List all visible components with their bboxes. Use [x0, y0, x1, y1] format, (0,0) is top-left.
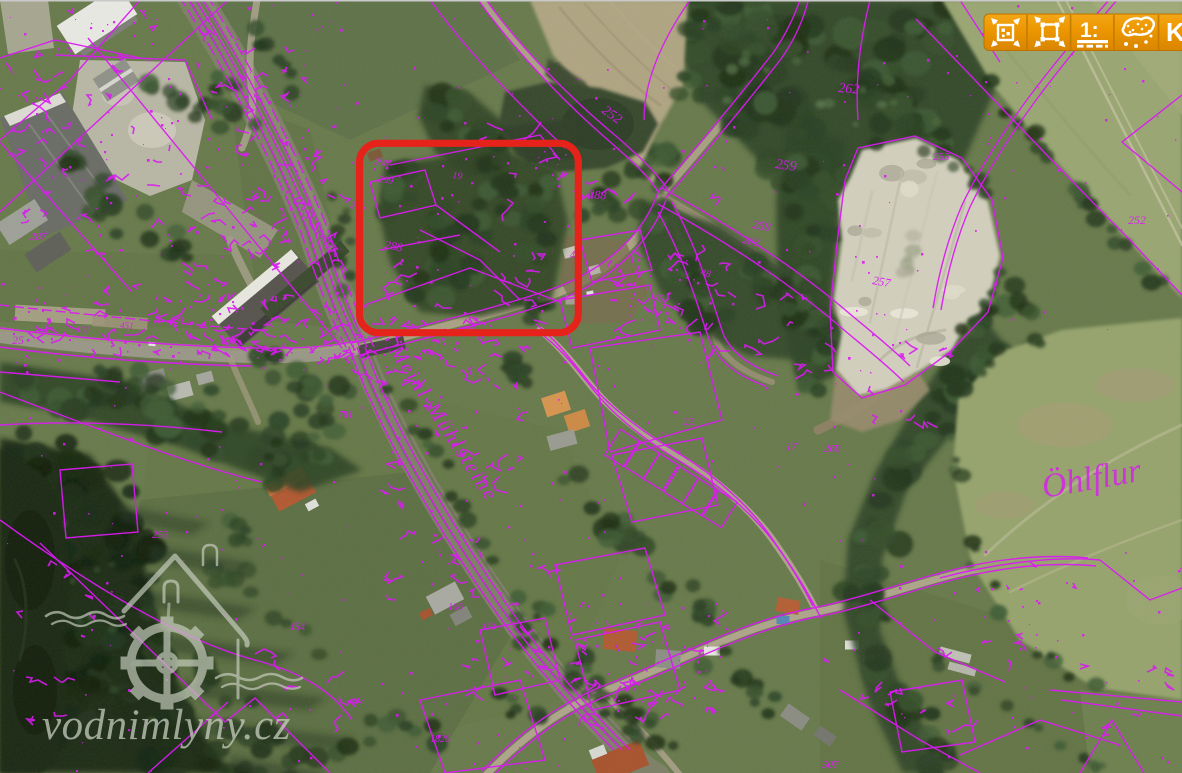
svg-text:154: 154: [290, 622, 305, 633]
svg-text:507: 507: [822, 759, 839, 771]
svg-text:451: 451: [120, 320, 134, 331]
svg-text:260: 260: [824, 443, 841, 455]
svg-text:262: 262: [838, 81, 860, 98]
svg-text:106: 106: [448, 602, 463, 613]
svg-text:288: 288: [588, 187, 607, 203]
svg-text:19: 19: [452, 170, 463, 182]
svg-text:151: 151: [76, 324, 90, 335]
svg-text:252: 252: [1128, 213, 1146, 227]
svg-text:255: 255: [933, 151, 950, 163]
svg-text:1:: 1:: [1080, 19, 1099, 42]
svg-text:299: 299: [378, 174, 394, 187]
svg-text:153: 153: [482, 622, 496, 632]
svg-text:259: 259: [774, 157, 797, 175]
svg-text:17: 17: [786, 441, 798, 453]
svg-text:287: 287: [30, 231, 47, 243]
svg-text:vodnimlyny.cz: vodnimlyny.cz: [42, 702, 291, 749]
svg-text:Kl: Kl: [1166, 17, 1182, 47]
svg-text:253: 253: [152, 529, 169, 541]
svg-text:22: 22: [683, 416, 695, 428]
svg-text:433: 433: [170, 314, 185, 325]
